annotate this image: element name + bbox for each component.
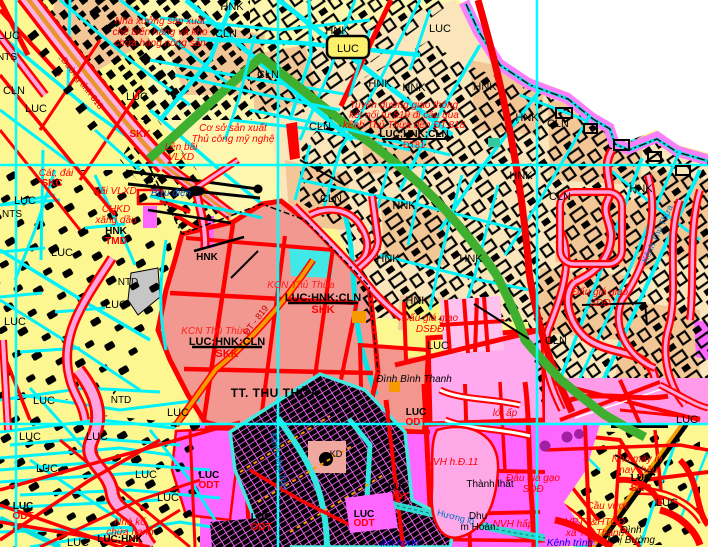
svg-text:HNK: HNK [629,183,653,195]
svg-text:lới ấp: lới ấp [493,407,518,419]
svg-text:CLN: CLN [545,335,567,347]
svg-text:KCN Thủ Thừa: KCN Thủ Thừa [267,279,335,291]
svg-text:HNK: HNK [405,295,429,307]
svg-text:LUC: LUC [19,431,41,443]
svg-text:LUC: LUC [429,23,451,35]
svg-text:CLN: CLN [215,28,237,40]
svg-text:LUC: LUC [14,195,36,207]
svg-text:kênh Thủ Thừa đến ĐT.818: kênh Thủ Thừa đến ĐT.818 [343,119,466,131]
svg-text:CLN: CLN [3,85,25,97]
svg-text:HNK: HNK [459,253,483,265]
svg-text:ODT: ODT [198,480,219,491]
svg-text:LUC: LUC [36,463,58,475]
svg-text:LUC;HNK: LUC;HNK [97,534,143,545]
svg-text:SKK: SKK [311,304,334,316]
svg-text:Bưu điện: Bưu điện [151,188,192,199]
svg-text:LUC: LUC [67,537,89,547]
svg-text:LUC: LUC [0,30,20,42]
svg-text:LUC: LUC [157,492,179,504]
svg-text:NTD: NTD [111,395,132,406]
svg-text:DSĐĐ: DSĐĐ [416,324,444,335]
svg-text:SDĐ: SDĐ [589,298,610,309]
svg-text:Đình Bình Thanh: Đình Bình Thanh [376,374,452,385]
svg-text:m Hoàn: m Hoàn [460,522,495,533]
svg-text:CHKD: CHKD [102,204,130,215]
svg-text:LUC: LUC [4,316,26,328]
svg-text:HNK: HNK [402,82,426,94]
svg-text:CLN: CLN [257,69,279,81]
svg-text:Đấu giá gạo: Đấu giá gạo [506,472,560,484]
svg-text:NTS: NTS [0,52,17,63]
svg-text:CLN: CLN [547,118,569,130]
svg-text:KD: KD [330,449,343,459]
svg-text:Đấu giá giao: Đấu giá giao [402,312,459,324]
svg-text:HNK: HNK [473,81,497,93]
svg-text:SĐĐ: SĐĐ [522,484,543,495]
svg-text:HNK: HNK [392,200,416,212]
svg-text:CLN: CLN [309,121,331,133]
svg-text:NVH hấp: NVH hấp [493,518,534,530]
svg-text:CLN: CLN [549,191,571,203]
svg-text:LUC: LUC [105,299,127,311]
svg-text:SKC: SKC [630,483,651,494]
svg-text:Bãi VLXD: Bãi VLXD [93,186,136,197]
svg-text:Nhị Bường: Nhị Bường [607,535,655,546]
svg-text:HNK: HNK [515,112,539,124]
svg-text:ODT: ODT [353,518,374,529]
svg-text:LUC: LUC [51,247,73,259]
svg-text:chứa hàng nông sản: chứa hàng nông sản [114,37,206,49]
svg-text:ODT: ODT [250,522,271,533]
svg-text:LUC: LUC [337,43,359,55]
svg-text:CLN: CLN [320,193,342,205]
svg-text:HNK: HNK [220,1,244,13]
svg-text:HNK: HNK [196,252,218,263]
svg-text:Cơ sở sản xuất: Cơ sở sản xuất [199,122,268,134]
svg-text:TMD: TMD [105,236,127,247]
svg-text:LUC: LUC [427,340,449,352]
svg-text:TT. THU THỪA: TT. THU THỪA [231,385,320,400]
svg-text:LUC: LUC [126,91,148,103]
svg-text:VLXD: VLXD [168,152,194,163]
svg-text:ODT: ODT [12,511,33,522]
svg-text:ĐT81: ĐT81 [403,140,425,150]
svg-text:xăng dầu: xăng dầu [94,214,137,226]
svg-text:ịnh hờnh: ịnh hờnh [380,538,420,547]
svg-text:Thành lhất: Thành lhất [466,478,513,490]
svg-text:NTD: NTD [118,277,139,288]
svg-text:HNK: HNK [376,253,400,265]
svg-text:SKK: SKK [215,348,238,360]
svg-text:LUC: LUC [676,414,698,426]
svg-text:LUC: LUC [167,407,189,419]
svg-text:HNK: HNK [509,170,533,182]
svg-text:Nhà xưởng sản xuất: Nhà xưởng sản xuất [115,15,206,27]
svg-text:Nhà máy in: Nhà máy in [612,454,663,465]
svg-text:LUC: LUC [86,431,108,443]
svg-text:Cầu vượt: Cầu vượt [586,500,629,512]
svg-text:Đấu giá giao: Đấu giá giao [572,286,629,298]
svg-text:NTS: NTS [2,209,22,220]
svg-text:HNK: HNK [368,78,392,90]
svg-text:LUC: LUC [33,395,55,407]
svg-text:LUC: LUC [135,469,157,481]
svg-text:LUC: LUC [656,497,678,509]
svg-text:Thủ công mỹ nghệ: Thủ công mỹ nghệ [192,133,275,145]
svg-text:HNK: HNK [325,25,349,37]
svg-text:SKK: SKK [129,129,151,140]
svg-text:NVH h.Đ.11: NVH h.Đ.11 [426,457,479,468]
svg-text:ODT: ODT [405,417,426,428]
svg-text:Dhụ: Dhụ [469,511,487,522]
svg-text:VPTT&HTCĐ: VPTT&HTCĐ [565,517,625,528]
svg-text:LUC: LUC [25,103,47,115]
svg-text:Kênh trình: Kênh trình [547,538,594,547]
svg-text:chế biến hàng và kho: chế biến hàng và kho [112,26,208,38]
svg-text:SKC: SKC [41,178,62,189]
svg-text:KCN Thủ Thừa: KCN Thủ Thừa [181,325,249,337]
